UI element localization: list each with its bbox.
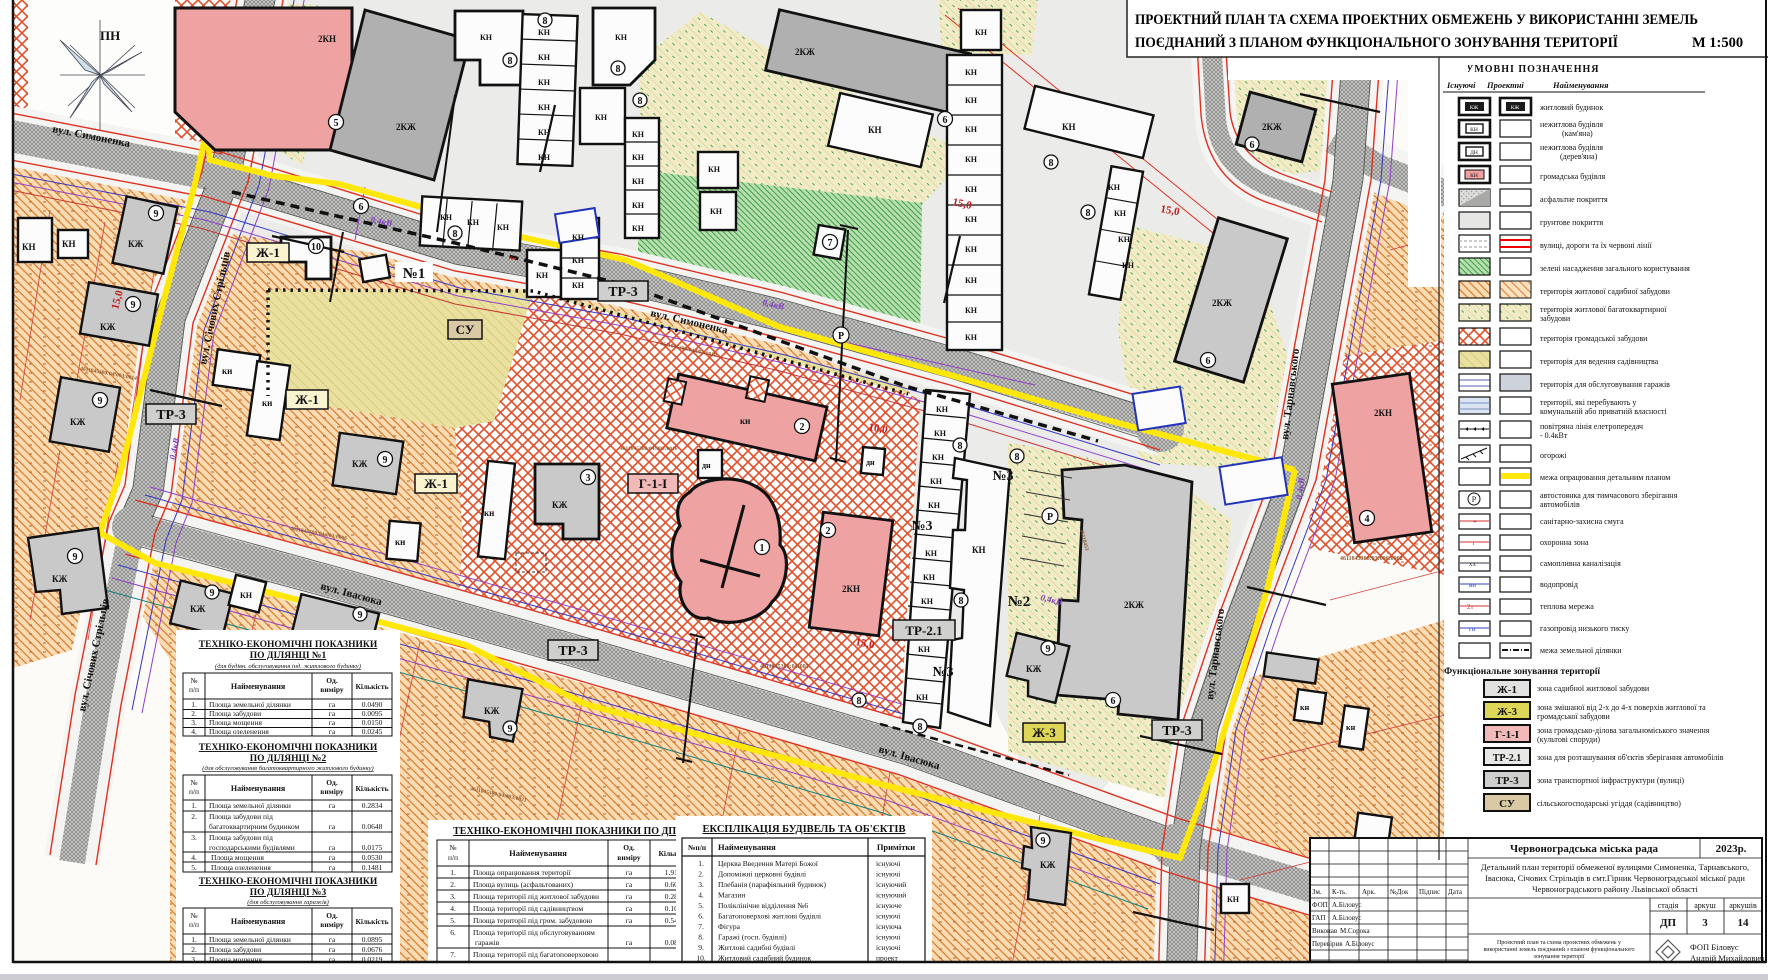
svg-text:Червоноградського району Львів: Червоноградського району Львівської обла… — [1532, 884, 1698, 894]
svg-text:№2: №2 — [1008, 594, 1031, 610]
svg-text:Площа земельної ділянки: Площа земельної ділянки — [209, 700, 291, 709]
svg-text:1.: 1. — [450, 868, 456, 877]
svg-text:КЖ: КЖ — [190, 604, 206, 614]
svg-text:га: га — [626, 916, 633, 925]
svg-text:КН: КН — [440, 213, 453, 222]
svg-text:8: 8 — [543, 16, 548, 27]
svg-text:КН: КН — [538, 78, 551, 87]
svg-text:КН: КН — [595, 113, 608, 122]
svg-text:Площа території під садівництв: Площа території під садівництвом — [473, 904, 583, 913]
svg-text:виміру: виміру — [320, 920, 344, 929]
svg-text:КН: КН — [1470, 127, 1478, 133]
svg-text:теплова мережа: теплова мережа — [1540, 602, 1594, 611]
svg-text:(для обслуговування багатоквар: (для обслуговування багатоквартирного жи… — [202, 765, 373, 772]
svg-text:ТЕХНІКО-ЕКОНОМІЧНІ ПОКАЗНИКИ: ТЕХНІКО-ЕКОНОМІЧНІ ПОКАЗНИКИ — [199, 877, 378, 887]
svg-text:ДП: ДП — [1660, 917, 1677, 929]
svg-text:КН: КН — [934, 429, 947, 438]
svg-text:вулиці, дороги та їх червоні л: вулиці, дороги та їх червоні лінії — [1540, 241, 1652, 250]
svg-text:дн: дн — [702, 461, 711, 470]
svg-text:існуючий: існуючий — [876, 880, 906, 889]
svg-text:Зм.: Зм. — [1312, 888, 1322, 896]
svg-text:КН: КН — [965, 333, 978, 342]
svg-text:2: 2 — [826, 526, 831, 537]
svg-text:10: 10 — [311, 242, 321, 253]
svg-text:грунтове покриття: грунтове покриття — [1540, 218, 1603, 227]
svg-text:КЖ: КЖ — [1040, 860, 1056, 870]
svg-text:КН: КН — [536, 271, 549, 280]
svg-text:КЖ: КЖ — [552, 500, 568, 510]
svg-text:КЖ: КЖ — [352, 459, 368, 469]
svg-text:кн: кн — [1346, 723, 1356, 732]
svg-text:Проектні: Проектні — [1486, 80, 1524, 90]
svg-text:територія для обслуговування г: територія для обслуговування гаражів — [1540, 380, 1670, 389]
svg-text:вн: вн — [1469, 581, 1476, 589]
svg-text:2.: 2. — [450, 880, 456, 889]
svg-text:КН: КН — [710, 207, 723, 216]
svg-text:га: га — [329, 727, 336, 736]
svg-text:КН: КН — [965, 96, 978, 105]
svg-text:(дерев'яна): (дерев'яна) — [1560, 152, 1598, 161]
svg-text:ФОП: ФОП — [1312, 901, 1328, 909]
svg-text:багатоквартирним будинком: багатоквартирним будинком — [209, 822, 300, 831]
svg-text:дн: дн — [866, 458, 875, 467]
svg-text:8: 8 — [1015, 452, 1020, 463]
svg-text:гн: гн — [1469, 625, 1476, 633]
svg-text:4.: 4. — [698, 891, 704, 900]
svg-text:№1: №1 — [403, 266, 426, 282]
svg-text:1.: 1. — [191, 801, 197, 810]
svg-text:КН: КН — [925, 549, 938, 558]
svg-text:А.Біловус: А.Біловус — [1332, 901, 1361, 909]
svg-text:(для будівн. обслуговування ін: (для будівн. обслуговування інд. житлово… — [215, 663, 361, 670]
svg-text:6: 6 — [1111, 696, 1116, 707]
svg-text:га: га — [329, 863, 336, 872]
svg-text:9: 9 — [383, 455, 388, 466]
svg-text:2.: 2. — [191, 812, 197, 821]
svg-text:нежитлова будівля: нежитлова будівля — [1540, 120, 1603, 129]
svg-text:Найменування: Найменування — [718, 842, 776, 852]
svg-text:9: 9 — [154, 209, 159, 220]
svg-text:КН: КН — [923, 573, 936, 582]
svg-text:територія для ведення садівниц: територія для ведення садівництва — [1540, 357, 1659, 366]
svg-text:5.: 5. — [450, 916, 456, 925]
svg-text:7.: 7. — [450, 950, 456, 959]
svg-text:2023р.: 2023р. — [1716, 843, 1747, 855]
svg-text:ГАП: ГАП — [1312, 914, 1325, 922]
svg-text:господарськими будівлями: господарськими будівлями — [209, 843, 295, 852]
svg-text:ПОЄДНАНИЙ З ПЛАНОМ ФУНКЦІОНАЛЬ: ПОЄДНАНИЙ З ПЛАНОМ ФУНКЦІОНАЛЬНОГО ЗОНУВ… — [1135, 34, 1618, 51]
svg-text:2КЖ: 2КЖ — [795, 47, 815, 57]
svg-text:га: га — [329, 700, 336, 709]
svg-text:Виконав: Виконав — [1312, 927, 1338, 935]
svg-text:території, які перебувають у: території, які перебувають у — [1540, 398, 1636, 407]
svg-text:охоронна зона: охоронна зона — [1540, 538, 1589, 547]
svg-text:М 1:500: М 1:500 — [1692, 35, 1743, 51]
svg-text:Р: Р — [1047, 512, 1053, 523]
svg-text:8.: 8. — [698, 933, 704, 942]
svg-text:№: № — [190, 676, 197, 685]
svg-text:КН: КН — [572, 256, 585, 265]
svg-text:ТЕХНІКО-ЕКОНОМІЧНІ ПОКАЗНИКИ П: ТЕХНІКО-ЕКОНОМІЧНІ ПОКАЗНИКИ ПО ДПТ — [453, 826, 683, 837]
svg-text:Г-1-І: Г-1-І — [1495, 729, 1519, 741]
svg-text:Од.: Од. — [623, 843, 635, 852]
svg-text:6: 6 — [1250, 140, 1255, 151]
svg-text:КН: КН — [936, 405, 949, 414]
svg-text:9: 9 — [98, 396, 103, 407]
svg-text:Площа забудови: Площа забудови — [209, 709, 261, 718]
svg-text:громадська будівля: громадська будівля — [1540, 172, 1605, 181]
svg-text:використанні земель поєднаний: використанні земель поєднаний з планом ф… — [1483, 946, 1634, 953]
svg-text:повітряна лінія елетропередач: повітряна лінія елетропередач — [1540, 422, 1643, 431]
svg-text:ТР-2.1: ТР-2.1 — [905, 623, 942, 638]
svg-text:Церква Введення Матері Божої: Церква Введення Матері Божої — [718, 859, 819, 868]
svg-text:Червоноградська міська рада: Червоноградська міська рада — [1510, 843, 1658, 855]
svg-text:Перевірив: Перевірив — [1312, 940, 1343, 948]
svg-text:Допоміжні церковні будівлі: Допоміжні церковні будівлі — [718, 870, 806, 879]
svg-text:га: га — [329, 822, 336, 831]
svg-text:0.0490: 0.0490 — [362, 700, 383, 709]
svg-text:КН: КН — [972, 545, 986, 555]
svg-text:0.0245: 0.0245 — [362, 727, 383, 736]
svg-text:КЖ: КЖ — [52, 574, 68, 584]
svg-text:КН: КН — [1227, 895, 1240, 904]
svg-text:самопливна каналізація: самопливна каналізація — [1540, 559, 1621, 568]
svg-text:Примітки: Примітки — [877, 842, 915, 852]
svg-text:громадської забудови: громадської забудови — [1537, 712, 1610, 721]
svg-text:КН: КН — [572, 281, 585, 290]
svg-text:КЖ: КЖ — [1511, 105, 1520, 111]
svg-text:Ж-1: Ж-1 — [1497, 684, 1517, 696]
svg-text:кн: кн — [740, 416, 750, 426]
svg-text:4611845300:03:006:0002: 4611845300:03:006:0002 — [1340, 556, 1403, 562]
svg-text:кн: кн — [484, 508, 494, 518]
svg-text:К-ть.: К-ть. — [1332, 888, 1347, 896]
svg-text:Найменування: Найменування — [231, 917, 286, 926]
svg-text:га: га — [626, 868, 633, 877]
svg-text:2КЖ: 2КЖ — [396, 122, 416, 132]
svg-text:Підпис: Підпис — [1419, 888, 1440, 896]
svg-text:2: 2 — [800, 422, 805, 433]
svg-text:(для обслуговування гаражів): (для обслуговування гаражів) — [247, 899, 329, 906]
svg-text:КН: КН — [965, 276, 978, 285]
svg-text:0.0175: 0.0175 — [362, 843, 383, 852]
svg-text:Функціональне зонування терито: Функціональне зонування території — [1444, 666, 1600, 677]
svg-text:КН: КН — [632, 224, 645, 233]
svg-text:існуюча: існуюча — [876, 922, 902, 931]
svg-text:Кількість: Кількість — [355, 917, 388, 926]
svg-text:1.: 1. — [191, 700, 197, 709]
svg-text:КН: КН — [965, 68, 978, 77]
svg-text:ДН: ДН — [1470, 150, 1478, 156]
svg-text:2КН: 2КН — [1374, 408, 1392, 418]
svg-text:Площа земельної ділянки: Площа земельної ділянки — [209, 801, 291, 810]
svg-text:Од.: Од. — [326, 911, 338, 920]
svg-text:Детальний план території обмеж: Детальний план території обмеженої вулиц… — [1481, 862, 1749, 872]
svg-text:п/п: п/п — [189, 685, 199, 694]
svg-text:КН: КН — [632, 201, 645, 210]
svg-text:КН: КН — [932, 453, 945, 462]
svg-text:4: 4 — [1365, 514, 1370, 525]
svg-text:аркуш: аркуш — [1694, 901, 1716, 910]
svg-text:га: га — [329, 801, 336, 810]
svg-text:КН: КН — [467, 218, 480, 227]
svg-text:Площа території під гром. забу: Площа території під гром. забудовою — [473, 916, 593, 925]
svg-text:№3: №3 — [911, 519, 932, 534]
svg-text:6: 6 — [359, 202, 364, 213]
svg-text:водопровід: водопровід — [1540, 580, 1578, 589]
svg-text:КЖ: КЖ — [1026, 664, 1042, 674]
svg-text:КН: КН — [1062, 122, 1076, 132]
svg-text:КН: КН — [930, 477, 943, 486]
svg-text:зона садибної житлової забудов: зона садибної житлової забудови — [1537, 684, 1650, 693]
svg-text:існуючі: існуючі — [876, 912, 900, 921]
svg-text:Проектний план та схема проект: Проектний план та схема проектних обмеже… — [1497, 939, 1621, 946]
svg-text:1.: 1. — [191, 935, 197, 944]
svg-text:Арк.: Арк. — [1362, 888, 1376, 896]
svg-text:Площа території під обслуговув: Площа території під обслуговуванням — [473, 928, 595, 937]
svg-text:га: га — [329, 718, 336, 727]
svg-text:межа земельної ділянки: межа земельної ділянки — [1540, 646, 1622, 655]
svg-text:територія громадської забудови: територія громадської забудови — [1540, 334, 1648, 343]
svg-text:КЖ: КЖ — [100, 322, 116, 332]
svg-text:Ж-3: Ж-3 — [1497, 706, 1518, 718]
svg-text:ФОП Біловус: ФОП Біловус — [1690, 942, 1739, 952]
svg-text:ТР-2.1: ТР-2.1 — [1493, 753, 1522, 764]
svg-text:Поліклінічне відділення №6: Поліклінічне відділення №6 — [718, 901, 808, 910]
svg-text:(культові споруди): (культові споруди) — [1537, 735, 1600, 744]
svg-text:Багатоповерхові житлові будівл: Багатоповерхові житлові будівлі — [718, 912, 821, 921]
svg-text:ТР-3: ТР-3 — [558, 644, 588, 659]
svg-text:територія житлової садибної за: територія житлової садибної забудови — [1540, 287, 1671, 296]
svg-text:Площа земельної ділянки: Площа земельної ділянки — [209, 935, 291, 944]
svg-text:виміру: виміру — [320, 685, 344, 694]
svg-text:№3: №3 — [992, 469, 1013, 484]
svg-text:Площа опрацювання території: Площа опрацювання території — [473, 868, 572, 877]
svg-text:2КН: 2КН — [318, 34, 336, 44]
svg-text:4611845300:04:003:0016: 4611845300:04:003:0016 — [620, 446, 678, 452]
svg-text:зонування території: зонування території — [1533, 954, 1584, 960]
svg-text:9.: 9. — [698, 943, 704, 952]
svg-text:КН: КН — [965, 306, 978, 315]
svg-text:СУ: СУ — [1499, 798, 1515, 810]
svg-text:КН: КН — [62, 239, 76, 249]
svg-text:2КЖ: 2КЖ — [1212, 298, 1232, 308]
svg-text:7.: 7. — [698, 922, 704, 931]
svg-text:№3: №3 — [932, 665, 953, 680]
svg-text:КН: КН — [538, 153, 551, 162]
svg-text:Кількість: Кількість — [355, 784, 388, 793]
svg-text:комунальній або приватній влас: комунальній або приватній власності — [1540, 407, 1667, 416]
svg-text:ПРОЕКТНИЙ ПЛАН ТА СХЕМА ПРОЕКТ: ПРОЕКТНИЙ ПЛАН ТА СХЕМА ПРОЕКТНИХ ОБМЕЖЕ… — [1135, 11, 1698, 28]
svg-text:ЕКСПЛІКАЦІЯ БУДІВЕЛЬ ТА ОБ'ЄКТ: ЕКСПЛІКАЦІЯ БУДІВЕЛЬ ТА ОБ'ЄКТІВ — [702, 824, 905, 835]
svg-text:А.Біловус: А.Біловус — [1345, 940, 1374, 948]
svg-text:санітарно-захисна смуга: санітарно-захисна смуга — [1540, 517, 1624, 526]
svg-text:сільськогосподарські угіддя (с: сільськогосподарські угіддя (садівництво… — [1537, 799, 1681, 808]
svg-text:кн: кн — [395, 537, 405, 547]
svg-text:КН: КН — [916, 693, 929, 702]
svg-text:виміру: виміру — [320, 787, 344, 796]
svg-text:0.0530: 0.0530 — [362, 853, 383, 862]
svg-text:КН: КН — [632, 177, 645, 186]
svg-text:- 0.4кВт: - 0.4кВт — [1540, 431, 1568, 440]
svg-text:ТЕХНІКО-ЕКОНОМІЧНІ ПОКАЗНИКИ: ТЕХНІКО-ЕКОНОМІЧНІ ПОКАЗНИКИ — [199, 743, 378, 753]
svg-text:ПО ДІЛЯНЦІ №3: ПО ДІЛЯНЦІ №3 — [250, 888, 327, 898]
svg-text:ТР-3: ТР-3 — [156, 408, 186, 423]
svg-text:0.0095: 0.0095 — [362, 709, 383, 718]
svg-text:2.: 2. — [191, 709, 197, 718]
svg-text:Фігура: Фігура — [718, 922, 741, 931]
svg-text:КН: КН — [1118, 235, 1131, 244]
svg-text:9: 9 — [358, 610, 363, 621]
svg-text:КН: КН — [497, 223, 510, 232]
svg-text:8: 8 — [638, 96, 643, 107]
svg-text:Площа озеленення: Площа озеленення — [209, 727, 269, 736]
svg-text:Площа забудови під: Площа забудови під — [209, 812, 273, 821]
svg-text:Найменування: Найменування — [231, 682, 286, 691]
svg-text:КН: КН — [632, 153, 645, 162]
svg-text:4611845300:04:003: 4611845300:04:003 — [760, 664, 809, 670]
svg-text:0.0895: 0.0895 — [362, 935, 383, 944]
svg-text:Р: Р — [1472, 495, 1477, 504]
svg-text:автостоянка для тимчасового зб: автостоянка для тимчасового зберігання — [1540, 491, 1678, 500]
svg-text:кн: кн — [222, 366, 232, 376]
svg-text:ПО ДІЛЯНЦІ №2: ПО ДІЛЯНЦІ №2 — [250, 754, 327, 764]
svg-text:КЖ: КЖ — [128, 239, 144, 249]
svg-text:8: 8 — [918, 722, 923, 733]
svg-text:територія житлової багатокварт: територія житлової багатоквартирної — [1540, 305, 1667, 314]
svg-text:9: 9 — [1041, 836, 1046, 847]
svg-text:№: № — [190, 911, 197, 920]
svg-text:Найменування: Найменування — [1552, 80, 1609, 90]
svg-text:4.: 4. — [191, 727, 197, 736]
svg-text:Площа території під багатопове: Площа території під багатоповерховою — [473, 950, 599, 959]
svg-text:4.: 4. — [191, 853, 197, 862]
svg-text:Найменування: Найменування — [509, 848, 567, 858]
svg-text:Існуючі: Існуючі — [1446, 80, 1476, 90]
svg-text:Кількість: Кількість — [355, 682, 388, 691]
svg-text:зелені насадження загального к: зелені насадження загального користуванн… — [1540, 264, 1690, 273]
svg-text:га: га — [626, 880, 633, 889]
svg-text:8: 8 — [508, 56, 513, 67]
svg-text:СУ: СУ — [456, 322, 475, 337]
svg-text:га: га — [329, 843, 336, 852]
svg-text:п/п: п/п — [189, 787, 199, 796]
svg-text:КЖ: КЖ — [70, 417, 86, 427]
svg-text:існуючий: існуючий — [876, 891, 906, 900]
svg-text:3: 3 — [1702, 917, 1708, 929]
svg-text:аркушів: аркушів — [1729, 901, 1757, 910]
svg-text:6: 6 — [943, 115, 948, 126]
svg-text:ТР-3: ТР-3 — [1162, 724, 1192, 739]
svg-text:0.2834: 0.2834 — [362, 801, 383, 810]
svg-text:Площа території під житлової з: Площа території під житлової забудови — [473, 892, 599, 901]
svg-text:Магазин: Магазин — [718, 891, 745, 900]
svg-text:Дата: Дата — [1448, 888, 1463, 896]
svg-text:5.: 5. — [191, 863, 197, 872]
svg-text:Площа забудови під: Площа забудови під — [209, 833, 273, 842]
svg-text:п/п: п/п — [189, 920, 199, 929]
svg-text:6.: 6. — [698, 912, 704, 921]
svg-text:КН: КН — [868, 125, 882, 135]
svg-text:3.: 3. — [191, 718, 197, 727]
svg-text:КН: КН — [1114, 209, 1127, 218]
svg-text:КН: КН — [538, 28, 551, 37]
svg-text:7: 7 — [828, 238, 833, 249]
svg-text:існуючі: існуючі — [876, 943, 900, 952]
svg-text:КН: КН — [1470, 173, 1478, 179]
svg-text:Площа мощення: Площа мощення — [211, 853, 265, 862]
svg-text:КН: КН — [1108, 183, 1121, 192]
svg-text:га: га — [626, 892, 633, 901]
svg-text:9: 9 — [73, 552, 78, 563]
svg-text:зона транспортної інфраструкту: зона транспортної інфраструктури (вулиці… — [1537, 776, 1684, 785]
svg-text:існуючі: існуючі — [876, 933, 900, 942]
svg-text:0.0648: 0.0648 — [362, 822, 383, 831]
svg-text:2.: 2. — [698, 870, 704, 879]
svg-text:ПН: ПН — [100, 28, 120, 43]
svg-text:ТЕХНІКО-ЕКОНОМІЧНІ ПОКАЗНИКИ: ТЕХНІКО-ЕКОНОМІЧНІ ПОКАЗНИКИ — [199, 640, 378, 650]
svg-text:6.: 6. — [450, 928, 456, 937]
svg-text:А.Біловус: А.Біловус — [1332, 914, 1361, 922]
svg-text:Г-1-І: Г-1-І — [639, 476, 668, 491]
svg-text:№: № — [190, 778, 197, 787]
svg-text:існуючі: існуючі — [876, 870, 900, 879]
svg-text:стадія: стадія — [1658, 901, 1679, 910]
svg-text:ТР-3: ТР-3 — [1495, 775, 1519, 787]
svg-text:3.: 3. — [191, 833, 197, 842]
svg-text:межа опрацювання детальним пла: межа опрацювання детальним планом — [1540, 473, 1670, 482]
svg-text:5.: 5. — [698, 901, 704, 910]
svg-text:га: га — [329, 935, 336, 944]
svg-text:9: 9 — [131, 300, 136, 311]
svg-text:КН: КН — [480, 33, 493, 42]
svg-text:КН: КН — [965, 185, 978, 194]
svg-text:асфальтне покриття: асфальтне покриття — [1540, 195, 1608, 204]
svg-text:Плебанія (парафіяльний будинок: Плебанія (парафіяльний будинок) — [718, 880, 826, 889]
svg-text:14: 14 — [1738, 917, 1750, 929]
svg-text:8: 8 — [1086, 208, 1091, 219]
svg-text:+: + — [1473, 518, 1477, 526]
svg-text:га: га — [626, 904, 633, 913]
svg-text:6: 6 — [1206, 356, 1211, 367]
svg-text:Площа вулиць (асфальтованих): Площа вулиць (асфальтованих) — [473, 880, 574, 889]
svg-text:Площа мощення: Площа мощення — [209, 718, 263, 727]
svg-text:газопровід низького тиску: газопровід низького тиску — [1540, 624, 1629, 633]
svg-text:житловий будинок: житловий будинок — [1539, 103, 1603, 112]
svg-text:2т: 2т — [1467, 603, 1474, 611]
svg-text:9: 9 — [210, 588, 215, 599]
svg-text:КН: КН — [921, 597, 934, 606]
svg-text:Площа забудови: Площа забудови — [209, 945, 261, 954]
svg-text:п/п: п/п — [448, 853, 458, 862]
svg-text:КН: КН — [538, 128, 551, 137]
svg-text:КН: КН — [975, 28, 988, 37]
svg-text:га: га — [329, 945, 336, 954]
svg-text:0.0150: 0.0150 — [362, 718, 383, 727]
svg-text:№Док: №Док — [1390, 888, 1409, 896]
svg-text:існуючі: існуючі — [876, 859, 900, 868]
svg-text:КН: КН — [22, 242, 36, 252]
svg-text:УМОВНІ ПОЗНАЧЕННЯ: УМОВНІ ПОЗНАЧЕННЯ — [1466, 64, 1600, 75]
svg-text:ПО ДІЛЯНЦІ №1: ПО ДІЛЯНЦІ №1 — [250, 651, 327, 661]
svg-text:3.: 3. — [698, 880, 704, 889]
svg-text:Ж-1: Ж-1 — [256, 245, 280, 260]
svg-text:2КН: 2КН — [842, 584, 860, 594]
svg-text:9: 9 — [1046, 644, 1051, 655]
svg-text:КН: КН — [965, 245, 978, 254]
svg-text:Ж-1: Ж-1 — [424, 476, 448, 491]
svg-text:КН: КН — [632, 130, 645, 139]
